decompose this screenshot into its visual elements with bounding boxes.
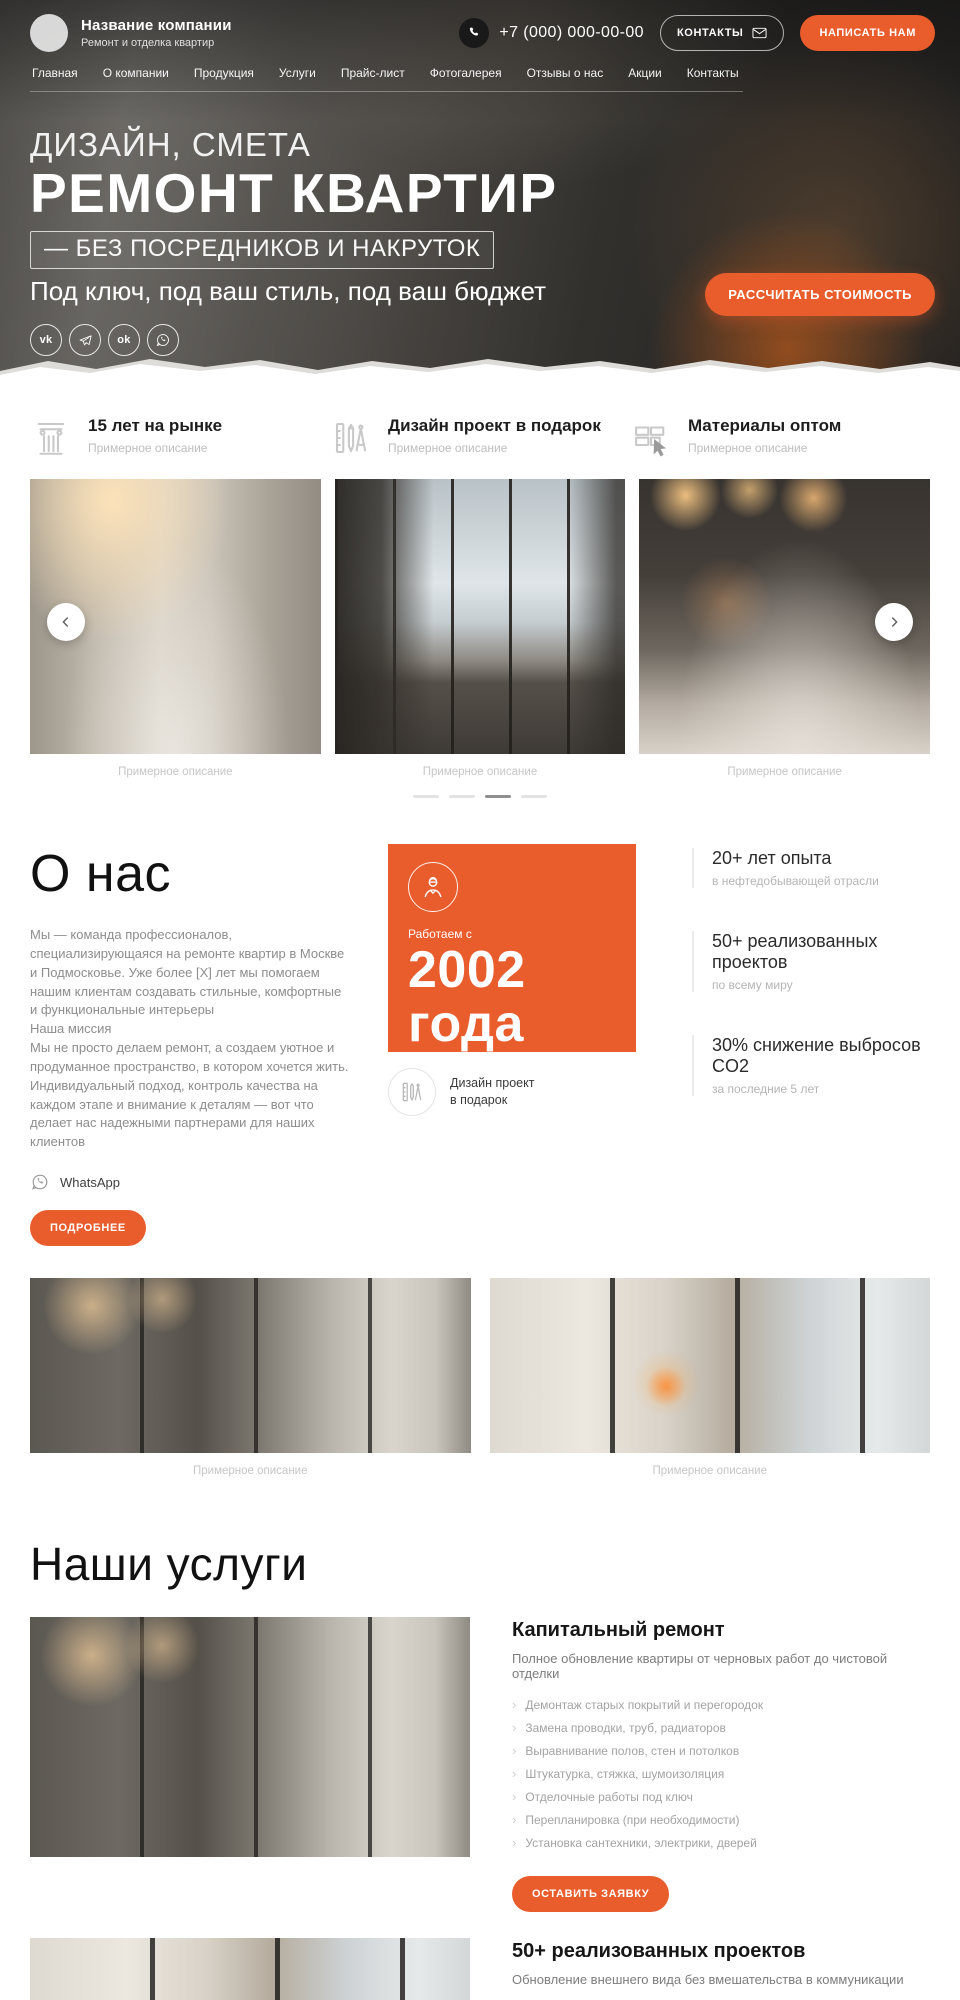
since-label: Работаем с xyxy=(408,927,616,941)
about-mission-label: Наша миссия xyxy=(30,1020,352,1039)
feature-subtitle: Примерное описание xyxy=(388,441,601,455)
feature-subtitle: Примерное описание xyxy=(688,441,841,455)
whatsapp-label: WhatsApp xyxy=(60,1175,120,1190)
about-photo-left: Примерное описание xyxy=(30,1278,471,1477)
contacts-button-label: КОНТАКТЫ xyxy=(677,27,743,39)
photo-caption: Примерное описание xyxy=(490,1465,931,1477)
service-list-item: Замена проводки, труб, радиаторов xyxy=(512,1720,930,1735)
nav-item-reviews[interactable]: Отзывы о нас xyxy=(527,66,604,80)
gift-line-1: Дизайн проект xyxy=(450,1075,534,1092)
feature-subtitle: Примерное описание xyxy=(88,441,222,455)
service-list-item: Демонтаж старых покрытий и перегородок xyxy=(512,1697,930,1712)
service-list-item: Перепланировка (при необходимости) xyxy=(512,1812,930,1827)
nav-item-services[interactable]: Услуги xyxy=(279,66,316,80)
nav-item-contacts[interactable]: Контакты xyxy=(687,66,739,80)
interior-photo-2 xyxy=(335,479,626,754)
service-description: Обновление внешнего вида без вмешательст… xyxy=(512,1972,930,1987)
feature-title: 15 лет на рынке xyxy=(88,416,222,436)
stat-caption: по всему миру xyxy=(712,978,930,992)
features-section: 15 лет на рынке Примерное описание Дизай… xyxy=(0,416,960,459)
service-title: Капитальный ремонт xyxy=(512,1619,930,1642)
hero-kicker: ДИЗАЙН, СМЕТА xyxy=(30,126,935,164)
column-icon xyxy=(30,417,72,459)
write-button[interactable]: НАПИСАТЬ НАМ xyxy=(800,15,935,51)
service-list-item: Штукатурка, стяжка, шумоизоляция xyxy=(512,1766,930,1781)
stat-experience: 20+ лет опыта в нефтедобывающей отрасли xyxy=(692,848,930,888)
contacts-button[interactable]: КОНТАКТЫ xyxy=(660,15,784,51)
whatsapp-icon xyxy=(155,332,171,348)
hero-section: Название компании Ремонт и отделка кварт… xyxy=(0,0,960,380)
carousel-dot[interactable] xyxy=(449,795,475,798)
service-body: 50+ реализованных проектов Обновление вн… xyxy=(512,1938,930,2000)
calculate-cost-button[interactable]: РАССЧИТАТЬ СТОИМОСТЬ xyxy=(705,273,935,316)
about-badge-column: Работаем с 2002 года Дизайн проект в под… xyxy=(388,844,636,1246)
feature-years: 15 лет на рынке Примерное описание xyxy=(30,416,330,459)
service-body: Капитальный ремонт Полное обновление ква… xyxy=(512,1617,930,1912)
since-year: 2002 xyxy=(408,946,616,995)
person-icon xyxy=(408,862,458,912)
service-photo-1 xyxy=(30,1617,470,1857)
carousel-prev-button[interactable] xyxy=(47,603,85,641)
stat-projects: 50+ реализованных проектов по всему миру xyxy=(692,931,930,992)
telegram-icon xyxy=(78,333,93,348)
carousel-track: Примерное описание Примерное описание Пр… xyxy=(30,479,930,778)
service-title: 50+ реализованных проектов xyxy=(512,1940,930,1963)
feature-text: 15 лет на рынке Примерное описание xyxy=(88,416,222,455)
social-telegram[interactable] xyxy=(69,324,101,356)
hero-title: РЕМОНТ КВАРТИР xyxy=(30,166,935,221)
services-section: Наши услуги Капитальный ремонт Полное об… xyxy=(0,1537,960,2000)
since-year-word: года xyxy=(408,1000,616,1049)
service-list-item: Выравнивание полов, стен и потолков xyxy=(512,1743,930,1758)
nav-item-pricelist[interactable]: Прайс-лист xyxy=(341,66,405,80)
carousel-next-button[interactable] xyxy=(875,603,913,641)
photo-caption: Примерное описание xyxy=(639,766,930,778)
about-paragraph-2: Мы не просто делаем ремонт, а создаем ую… xyxy=(30,1039,352,1152)
feature-title: Дизайн проект в подарок xyxy=(388,416,601,436)
phone-icon xyxy=(459,18,489,48)
carousel-dot-active[interactable] xyxy=(485,795,511,798)
social-links: vk ok xyxy=(30,324,935,356)
materials-icon xyxy=(630,417,672,459)
phone-link[interactable]: +7 (000) 000-00-00 xyxy=(459,18,644,48)
header-actions: +7 (000) 000-00-00 КОНТАКТЫ НАПИСАТЬ НАМ xyxy=(459,15,935,51)
brand-text: Название компании Ремонт и отделка кварт… xyxy=(81,17,232,49)
feature-design-gift: Дизайн проект в подарок Примерное описан… xyxy=(330,416,630,459)
social-whatsapp[interactable] xyxy=(147,324,179,356)
design-gift-note: Дизайн проект в подарок xyxy=(388,1068,636,1116)
services-title: Наши услуги xyxy=(30,1537,930,1591)
company-tagline: Ремонт и отделка квартир xyxy=(81,37,232,49)
about-text-column: О нас Мы — команда профессионалов, специ… xyxy=(30,844,352,1246)
carousel-pagination xyxy=(30,795,930,798)
since-year-card: Работаем с 2002 года xyxy=(388,844,636,1052)
photo-caption: Примерное описание xyxy=(30,766,321,778)
service-list-item: Отделочные работы под ключ xyxy=(512,1789,930,1804)
service-cosmetic-repair: 50+ реализованных проектов Обновление вн… xyxy=(30,1938,930,2000)
photo-caption: Примерное описание xyxy=(335,766,626,778)
envelope-icon xyxy=(752,27,767,39)
company-name: Название компании xyxy=(81,17,232,34)
header: Название компании Ремонт и отделка кварт… xyxy=(30,14,935,52)
carousel-dot[interactable] xyxy=(521,795,547,798)
interior-photo-4 xyxy=(30,1278,471,1453)
main-nav: Главная О компании Продукция Услуги Прай… xyxy=(30,66,743,92)
phone-number: +7 (000) 000-00-00 xyxy=(499,24,644,42)
whatsapp-icon xyxy=(30,1172,50,1192)
nav-item-about[interactable]: О компании xyxy=(103,66,169,80)
stat-value: 50+ реализованных проектов xyxy=(712,931,930,973)
drafting-icon xyxy=(388,1068,436,1116)
more-button[interactable]: ПОДРОБНЕЕ xyxy=(30,1210,146,1246)
service-list-item: Установка сантехники, электрики, дверей xyxy=(512,1835,930,1850)
social-ok[interactable]: ok xyxy=(108,324,140,356)
about-photos-section: Примерное описание Примерное описание xyxy=(0,1278,960,1477)
drafting-icon xyxy=(330,417,372,459)
photo-caption: Примерное описание xyxy=(30,1465,471,1477)
stat-value: 20+ лет опыта xyxy=(712,848,930,869)
stat-caption: в нефтедобывающей отрасли xyxy=(712,874,930,888)
gift-line-2: в подарок xyxy=(450,1092,534,1109)
stat-caption: за последние 5 лет xyxy=(712,1082,930,1096)
feature-text: Дизайн проект в подарок Примерное описан… xyxy=(388,416,601,455)
stats-column: 20+ лет опыта в нефтедобывающей отрасли … xyxy=(692,844,930,1246)
nav-item-promos[interactable]: Акции xyxy=(628,66,662,80)
gift-text: Дизайн проект в подарок xyxy=(450,1075,534,1109)
social-vk[interactable]: vk xyxy=(30,324,62,356)
service-description: Полное обновление квартиры от черновых р… xyxy=(512,1651,930,1681)
gallery-carousel: Примерное описание Примерное описание Пр… xyxy=(0,479,960,798)
company-logo xyxy=(30,14,68,52)
service-list: Демонтаж старых покрытий и перегородок З… xyxy=(512,1697,930,1850)
interior-photo-5 xyxy=(490,1278,931,1453)
nav-item-gallery[interactable]: Фотогалерея xyxy=(430,66,502,80)
nav-item-products[interactable]: Продукция xyxy=(194,66,254,80)
ok-icon: ok xyxy=(117,334,130,346)
vk-icon: vk xyxy=(40,334,53,346)
stat-value: 30% снижение выбросов CO2 xyxy=(712,1035,930,1077)
about-paragraph-1: Мы — команда профессионалов, специализир… xyxy=(30,926,352,1020)
about-title: О нас xyxy=(30,844,352,904)
service-capital-repair: Капитальный ремонт Полное обновление ква… xyxy=(30,1617,930,1912)
nav-item-home[interactable]: Главная xyxy=(32,66,78,80)
page: Название компании Ремонт и отделка кварт… xyxy=(0,0,960,2000)
hero-boxed-line: — БЕЗ ПОСРЕДНИКОВ И НАКРУТОК xyxy=(30,231,494,269)
whatsapp-link[interactable]: WhatsApp xyxy=(30,1172,352,1192)
carousel-dot[interactable] xyxy=(413,795,439,798)
carousel-slide-2[interactable]: Примерное описание xyxy=(335,479,626,778)
torn-edge-decoration xyxy=(0,355,960,381)
about-section: О нас Мы — команда профессионалов, специ… xyxy=(0,844,960,1246)
brand: Название компании Ремонт и отделка кварт… xyxy=(30,14,232,52)
leave-request-button[interactable]: ОСТАВИТЬ ЗАЯВКУ xyxy=(512,1876,669,1912)
about-photo-right: Примерное описание xyxy=(490,1278,931,1477)
feature-title: Материалы оптом xyxy=(688,416,841,436)
feature-materials: Материалы оптом Примерное описание xyxy=(630,416,930,459)
service-photo-2 xyxy=(30,1938,470,2000)
stat-co2: 30% снижение выбросов CO2 за последние 5… xyxy=(692,1035,930,1096)
feature-text: Материалы оптом Примерное описание xyxy=(688,416,841,455)
